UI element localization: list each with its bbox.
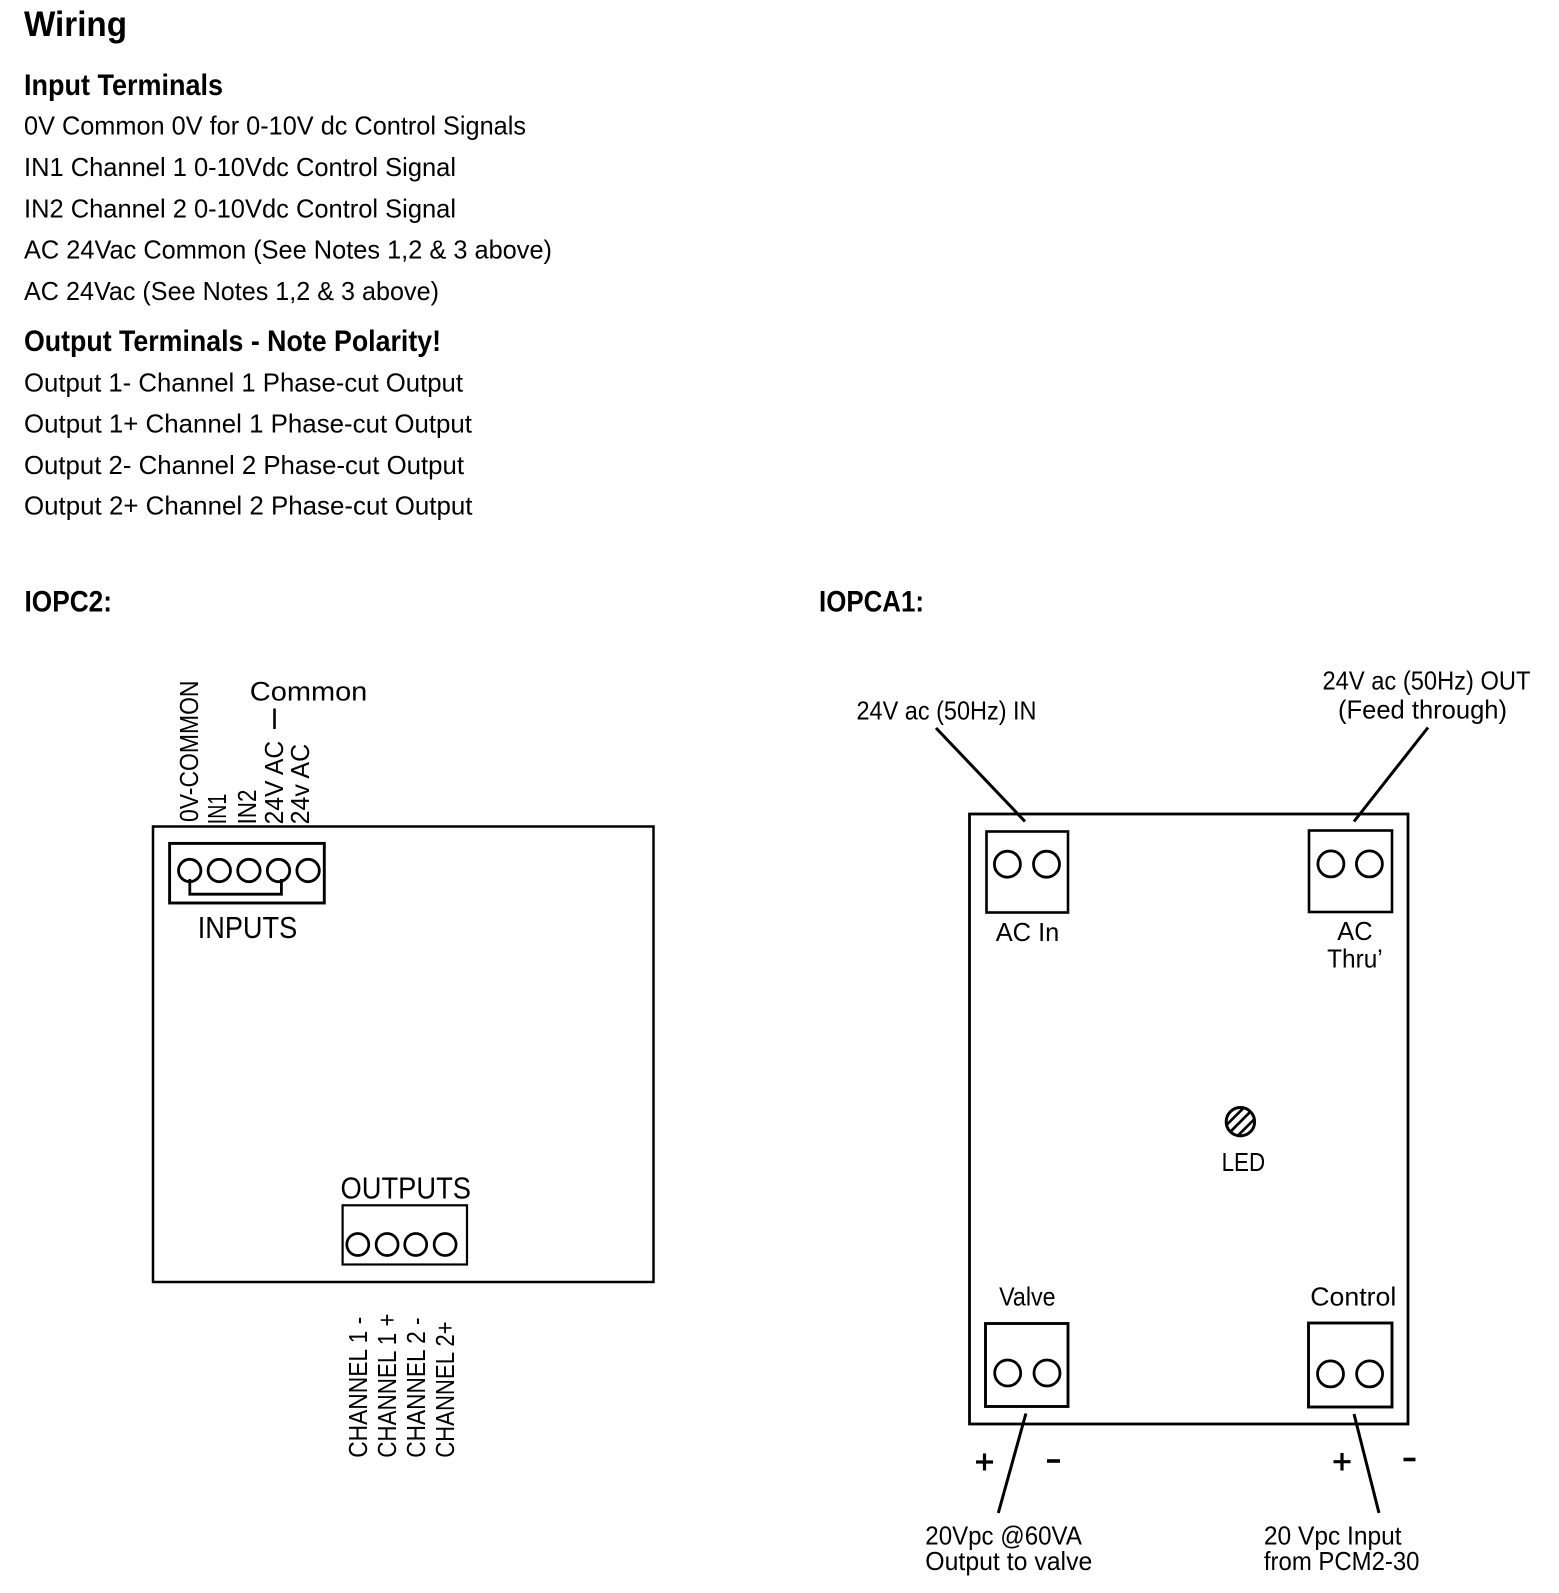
svg-text:CHANNEL 1 -: CHANNEL 1 - <box>343 1317 373 1458</box>
svg-text:0V-COMMON: 0V-COMMON <box>174 681 204 823</box>
svg-text:Valve: Valve <box>999 1282 1056 1312</box>
svg-text:Output 2- Channel 2 Phase-cut: Output 2- Channel 2 Phase-cut Output <box>24 450 465 480</box>
svg-text:IN2: IN2 <box>232 790 262 825</box>
svg-text:IN1: IN1 <box>202 794 232 825</box>
svg-text:IOPCA1:: IOPCA1: <box>819 586 924 619</box>
svg-text:Output 1+ Channel 1 Phase-cut: Output 1+ Channel 1 Phase-cut Output <box>24 409 473 439</box>
svg-text:IN2 Channel 2 0-10Vdc Control: IN2 Channel 2 0-10Vdc Control Signal <box>24 194 456 224</box>
svg-text:Thru’: Thru’ <box>1327 944 1383 974</box>
svg-text:Output 1- Channel 1 Phase-cut: Output 1- Channel 1 Phase-cut Output <box>24 368 464 398</box>
svg-text:24V ac (50Hz) OUT: 24V ac (50Hz) OUT <box>1323 666 1531 696</box>
svg-text:CHANNEL 1 +: CHANNEL 1 + <box>372 1314 402 1458</box>
svg-text:AC: AC <box>1337 916 1372 946</box>
svg-text:Output 2+ Channel 2 Phase-cut: Output 2+ Channel 2 Phase-cut Output <box>24 491 473 521</box>
svg-text:24v AC: 24v AC <box>285 744 315 825</box>
svg-text:Control: Control <box>1310 1281 1396 1311</box>
svg-text:AC In: AC In <box>996 917 1060 947</box>
svg-text:Input Terminals: Input Terminals <box>24 69 223 102</box>
svg-text:Wiring: Wiring <box>24 5 127 44</box>
svg-text:0V Common 0V for 0-10V dc Cont: 0V Common 0V for 0-10V dc Control Signal… <box>24 111 526 141</box>
svg-text:IN1 Channel 1 0-10Vdc Control: IN1 Channel 1 0-10Vdc Control Signal <box>24 152 456 182</box>
svg-text:Common: Common <box>250 676 367 706</box>
svg-text:AC 24Vac (See Notes 1,2 & 3 ab: AC 24Vac (See Notes 1,2 & 3 above) <box>24 276 439 306</box>
svg-text:Output to valve: Output to valve <box>925 1546 1092 1576</box>
svg-text:OUTPUTS: OUTPUTS <box>341 1171 472 1206</box>
svg-text:IOPC2:: IOPC2: <box>25 586 113 619</box>
svg-text:LED: LED <box>1222 1147 1266 1177</box>
svg-text:INPUTS: INPUTS <box>198 910 298 945</box>
svg-text:CHANNEL 2 -: CHANNEL 2 - <box>401 1317 431 1457</box>
svg-text:24V ac (50Hz) IN: 24V ac (50Hz) IN <box>857 696 1037 726</box>
svg-text:Output Terminals - Note Polari: Output Terminals - Note Polarity! <box>24 325 441 358</box>
svg-text:AC 24Vac Common (See Notes 1,2: AC 24Vac Common (See Notes 1,2 & 3 above… <box>24 235 552 265</box>
svg-text:CHANNEL 2+: CHANNEL 2+ <box>430 1321 460 1457</box>
svg-text:(Feed through): (Feed through) <box>1338 695 1507 725</box>
svg-text:from PCM2-30: from PCM2-30 <box>1264 1546 1420 1576</box>
